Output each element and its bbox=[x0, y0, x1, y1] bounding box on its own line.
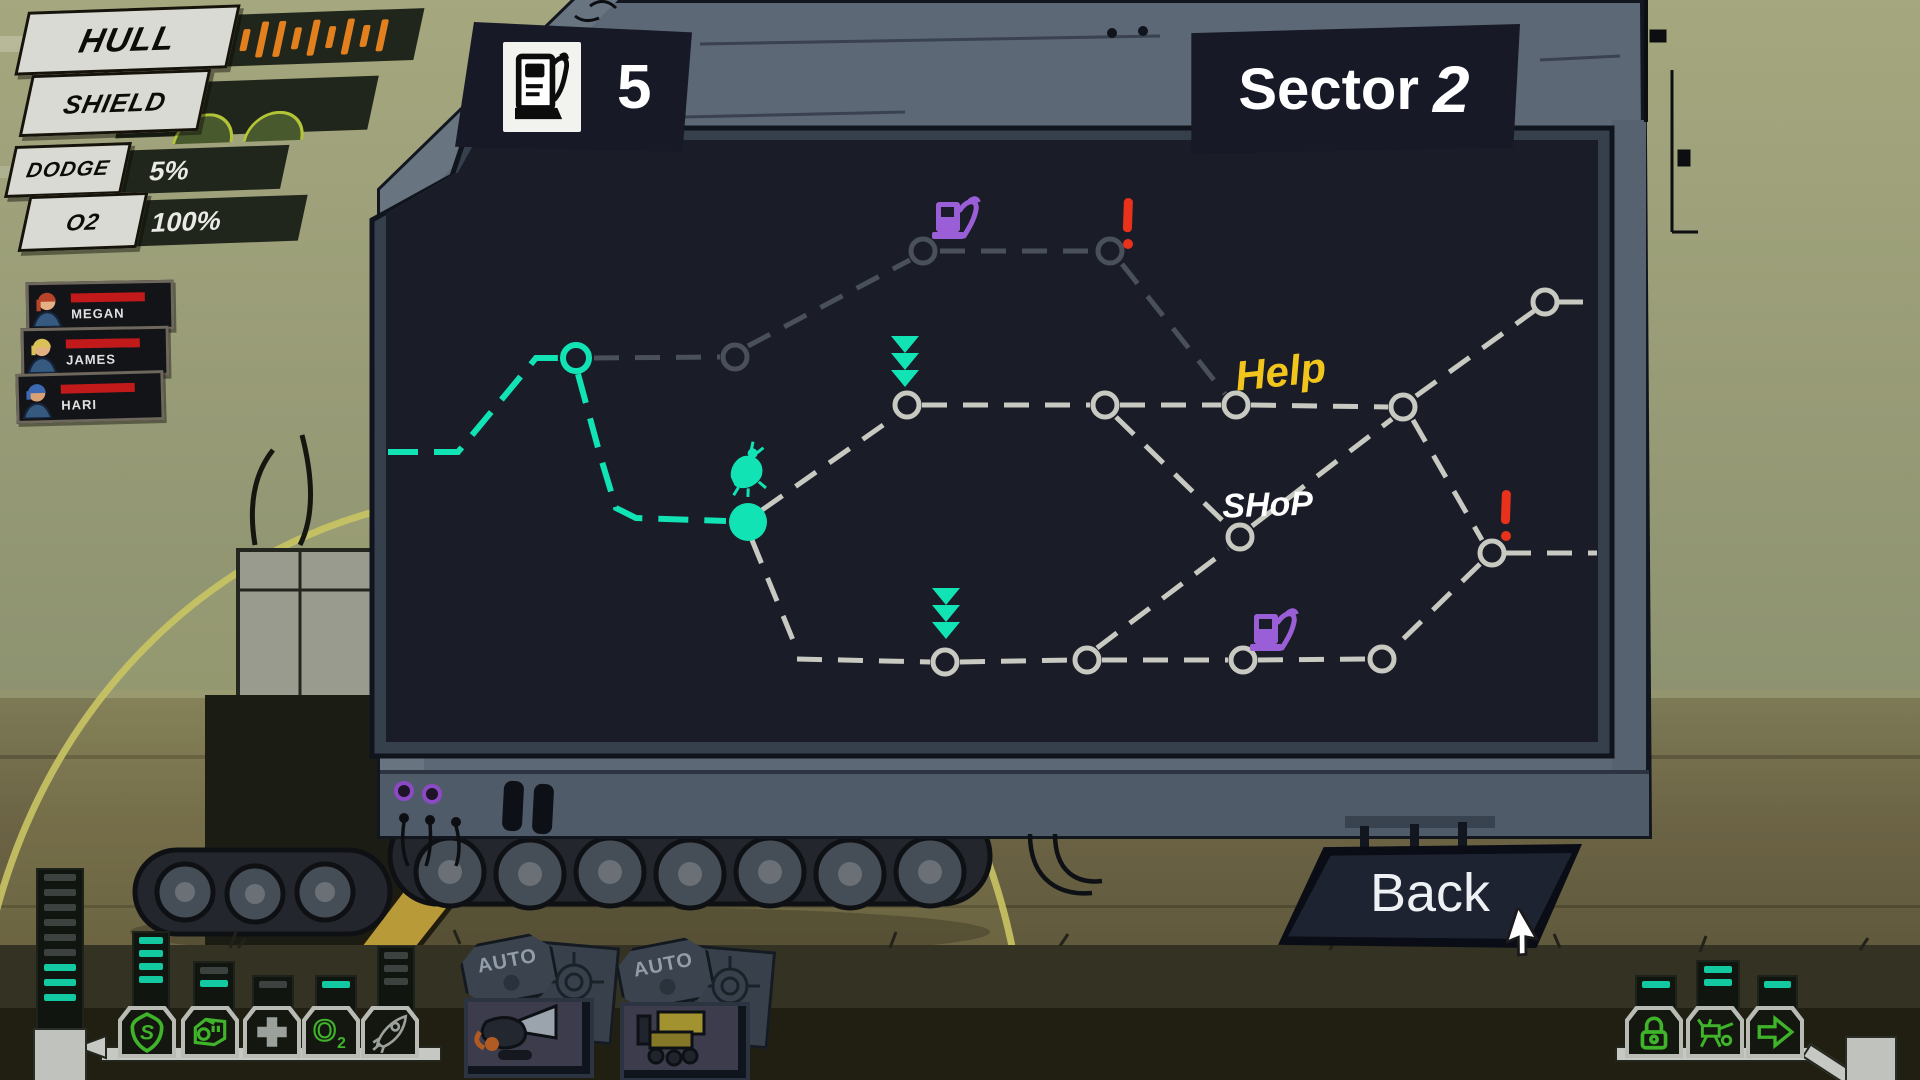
shield-s-icon: S bbox=[126, 1011, 168, 1053]
console-button-lock[interactable] bbox=[1625, 1006, 1683, 1058]
meter-segment bbox=[44, 964, 76, 971]
console-button-generator[interactable] bbox=[181, 1006, 239, 1058]
auto-label: AUTO bbox=[631, 948, 695, 982]
hull-tick bbox=[291, 27, 303, 49]
meter-segment bbox=[44, 994, 76, 1001]
console-button-medkit[interactable] bbox=[243, 1006, 301, 1058]
svg-text:SHoP: SHoP bbox=[1222, 484, 1314, 525]
console-button-sentry[interactable] bbox=[1686, 1006, 1744, 1058]
svg-text:S: S bbox=[140, 1021, 154, 1044]
meter-segment bbox=[200, 980, 227, 987]
auto-label: AUTO bbox=[475, 944, 539, 978]
sector-label: Sector bbox=[1238, 56, 1419, 123]
health-bar bbox=[71, 292, 145, 302]
danger-icon bbox=[1501, 490, 1511, 541]
back-label: Back bbox=[1370, 862, 1490, 930]
meter-segment bbox=[44, 949, 76, 956]
sign-dot bbox=[658, 977, 677, 996]
health-bar bbox=[61, 383, 135, 394]
map-node[interactable] bbox=[1480, 541, 1504, 565]
map-node[interactable] bbox=[933, 650, 957, 674]
console-button-rocket[interactable] bbox=[361, 1006, 419, 1058]
hud-bracket-left bbox=[33, 1028, 87, 1080]
crew-name: MEGAN bbox=[71, 305, 145, 321]
map-node[interactable] bbox=[729, 503, 767, 541]
avatar bbox=[29, 287, 66, 328]
meter-segment bbox=[44, 874, 76, 881]
rocket-icon bbox=[369, 1011, 411, 1053]
map-node[interactable] bbox=[563, 345, 589, 371]
meter-segment bbox=[1764, 981, 1791, 988]
hull-tick bbox=[359, 25, 371, 47]
crew-card-megan[interactable]: MEGAN bbox=[26, 280, 175, 333]
avatar bbox=[19, 378, 56, 419]
sector-number: 2 bbox=[1433, 51, 1470, 127]
crew-card-hari[interactable]: HARI bbox=[15, 370, 164, 424]
map-node[interactable] bbox=[1075, 648, 1099, 672]
map-node[interactable] bbox=[895, 393, 919, 417]
console-button-advance[interactable] bbox=[1746, 1006, 1804, 1058]
meter-segment bbox=[322, 981, 349, 988]
oxygen-icon: O 2 bbox=[310, 1011, 352, 1053]
crew-name: HARI bbox=[61, 396, 135, 413]
meter-segment bbox=[1642, 981, 1669, 988]
meter-segment bbox=[259, 981, 286, 988]
meter-segment bbox=[1704, 966, 1733, 973]
svg-text:2: 2 bbox=[337, 1035, 346, 1052]
meter-segment bbox=[139, 976, 163, 983]
dodge-plate: DODGE bbox=[4, 142, 132, 198]
o2-label: O2 bbox=[64, 208, 103, 236]
o2-plate: O2 bbox=[18, 192, 149, 252]
auto-turret-module-1[interactable]: AUTO bbox=[462, 936, 618, 1072]
meter-segment bbox=[384, 965, 408, 972]
map-label-shop: SHoP bbox=[1222, 484, 1314, 525]
meter-segment bbox=[384, 952, 408, 959]
hull-tick bbox=[239, 29, 251, 51]
map-screen bbox=[386, 140, 1598, 742]
sentry-gun-icon bbox=[1694, 1011, 1736, 1053]
svg-text:O: O bbox=[313, 1014, 336, 1047]
hull-tick bbox=[306, 20, 321, 56]
meter-segment bbox=[44, 889, 76, 896]
sector-panel: Sector 2 bbox=[1188, 24, 1520, 154]
meter-segment bbox=[139, 937, 163, 944]
console-button-oxygen[interactable]: O 2 bbox=[302, 1006, 360, 1058]
map-node[interactable] bbox=[1228, 525, 1252, 549]
turret-preview-icon bbox=[624, 1006, 738, 1070]
advance-arrow-icon bbox=[1754, 1011, 1796, 1053]
meter-segment bbox=[44, 919, 76, 926]
lock-icon bbox=[1633, 1011, 1675, 1053]
hud-bracket-right bbox=[1845, 1036, 1897, 1080]
meter-segment bbox=[200, 967, 227, 974]
fuel-panel: 5 bbox=[455, 22, 692, 152]
meter-segment bbox=[139, 963, 163, 970]
turret-screen bbox=[464, 998, 594, 1078]
crew-name: JAMES bbox=[66, 351, 140, 367]
meter-segment bbox=[44, 979, 76, 986]
hull-tick bbox=[255, 21, 270, 57]
meter-segment bbox=[44, 904, 76, 911]
meter-segment bbox=[139, 950, 163, 957]
hull-tick bbox=[272, 21, 287, 57]
meter-segment bbox=[1704, 979, 1733, 986]
turret-screen bbox=[620, 1002, 750, 1080]
o2-value: 100% bbox=[148, 205, 224, 238]
health-bar bbox=[66, 338, 140, 348]
shield-cell bbox=[243, 110, 310, 142]
avatar bbox=[24, 333, 61, 374]
auto-turret-module-2[interactable]: AUTO bbox=[618, 940, 774, 1076]
map-node[interactable] bbox=[1370, 647, 1394, 671]
map-node[interactable] bbox=[723, 345, 747, 369]
dodge-value: 5% bbox=[146, 155, 192, 187]
fuel-count: 5 bbox=[617, 52, 651, 123]
medkit-icon bbox=[251, 1011, 293, 1053]
map-node[interactable] bbox=[1391, 395, 1415, 419]
side-meter bbox=[36, 868, 84, 1034]
map-label-help: Help bbox=[1233, 343, 1328, 399]
svg-text:Help: Help bbox=[1233, 343, 1328, 399]
hull-tick bbox=[375, 19, 389, 51]
dodge-label: DODGE bbox=[24, 157, 112, 184]
map-edge bbox=[960, 660, 1072, 662]
fuel-pump-icon bbox=[503, 42, 581, 132]
background-art: HelpSHoP bbox=[0, 0, 1920, 1080]
meter-segment bbox=[44, 934, 76, 941]
hull-label: HULL bbox=[76, 19, 180, 61]
meter-segment bbox=[384, 978, 408, 985]
map-edge bbox=[1258, 659, 1367, 660]
console-button-shield[interactable]: S bbox=[118, 1006, 176, 1058]
danger-icon bbox=[1123, 198, 1133, 249]
hull-tick bbox=[325, 26, 337, 48]
supply-meter-1 bbox=[132, 931, 170, 1017]
game-screen: HelpSHoP HULL SHIELD 5% DODG bbox=[0, 0, 1920, 1080]
map-node[interactable] bbox=[1533, 290, 1557, 314]
mouse-cursor bbox=[1506, 908, 1554, 958]
shield-label: SHIELD bbox=[61, 86, 170, 121]
map-node[interactable] bbox=[1231, 648, 1255, 672]
hull-plate: HULL bbox=[14, 4, 240, 75]
shield-plate: SHIELD bbox=[19, 69, 212, 137]
hull-tick bbox=[340, 18, 355, 54]
map-node[interactable] bbox=[911, 239, 935, 263]
map-node[interactable] bbox=[1093, 393, 1117, 417]
map-node[interactable] bbox=[1098, 239, 1122, 263]
turret-preview-icon bbox=[468, 1002, 582, 1066]
sign-dot bbox=[502, 973, 521, 992]
generator-icon bbox=[189, 1011, 231, 1053]
